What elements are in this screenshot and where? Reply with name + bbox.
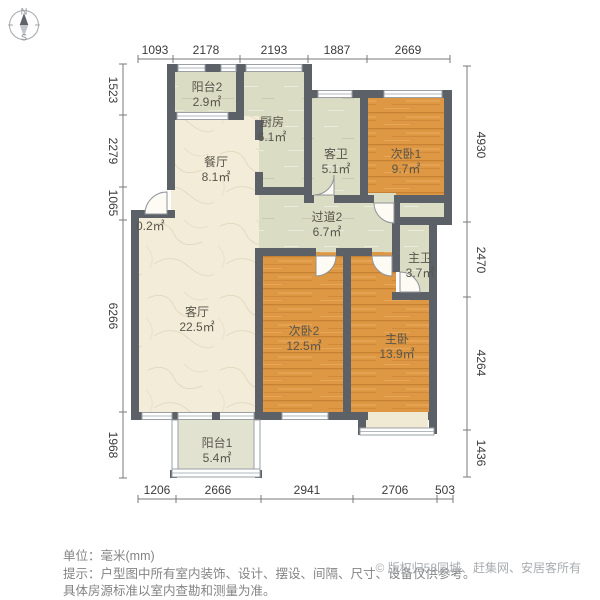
dim-right-2: 4264 — [474, 350, 488, 377]
dim-left-3: 6266 — [106, 303, 120, 330]
label-bedroom2: 次卧2 — [289, 324, 320, 338]
footer-tip-line2: 具体房源标准以室内查勘和测量为准。 — [63, 583, 276, 598]
master-bay-window-sill — [366, 412, 428, 429]
compass-south-label: S — [21, 33, 27, 43]
label-hallway2: 过道2 — [312, 210, 343, 224]
area-hallway2: 6.7㎡ — [313, 225, 342, 239]
living-balcony-slider — [178, 412, 254, 420]
dim-top-0: 1093 — [142, 43, 169, 57]
dim-bottom-1: 2666 — [205, 483, 232, 497]
area-bedroom2: 12.5㎡ — [286, 339, 321, 353]
footer: 单位：毫米(mm) 提示：户型图中所有室内装饰、设计、摆设、间隔、尺寸、设备仅供… — [63, 548, 581, 598]
area-dining: 8.1㎡ — [202, 170, 231, 184]
kitchen-top-window — [246, 65, 302, 72]
floorplan-drawing: N S — [0, 0, 600, 600]
room-master-bath-duct — [400, 203, 444, 217]
room-living — [135, 214, 175, 416]
dim-top-4: 2669 — [395, 43, 422, 57]
dim-left-1: 2279 — [106, 138, 120, 165]
dim-top-3: 1887 — [324, 43, 351, 57]
dimension-left: 1523 2279 1065 6266 1968 — [106, 64, 127, 478]
bedroom1-window — [384, 91, 442, 98]
area-balcony1: 5.4㎡ — [203, 451, 232, 465]
dim-right-1: 2470 — [474, 247, 488, 274]
area-entry-niche: 0.2㎡ — [136, 219, 165, 233]
dim-bottom-4: 503 — [435, 483, 455, 497]
area-bedroom1: 9.7㎡ — [392, 162, 421, 176]
dimension-bottom: 1206 2666 2941 2706 503 — [138, 483, 455, 503]
entry-door — [145, 192, 167, 214]
dim-bottom-0: 1206 — [144, 483, 171, 497]
dim-top-2: 2193 — [261, 43, 288, 57]
dim-left-0: 1523 — [106, 77, 120, 104]
label-master-bath: 主卫 — [408, 251, 432, 265]
floorplan-page: N S — [0, 0, 600, 600]
area-master-bedroom: 13.9㎡ — [379, 347, 414, 361]
dim-top-1: 2178 — [193, 43, 220, 57]
label-master-bedroom: 主卧 — [385, 332, 409, 346]
master-bay-window — [360, 428, 434, 435]
label-balcony2: 阳台2 — [192, 79, 223, 94]
living-window — [142, 413, 172, 420]
dimension-top: 1093 2178 2193 1887 2669 — [138, 43, 450, 63]
dim-bottom-3: 2706 — [382, 483, 409, 497]
dim-right-0: 4930 — [474, 132, 488, 159]
label-dining: 餐厅 — [204, 154, 228, 169]
dim-left-2: 1065 — [106, 190, 120, 217]
label-bedroom1: 次卧1 — [391, 147, 422, 161]
guest-bath-window — [318, 91, 352, 98]
area-living: 22.5㎡ — [179, 320, 214, 334]
dim-bottom-2: 2941 — [294, 483, 321, 497]
footer-unit-line: 单位：毫米(mm) — [63, 548, 155, 563]
area-balcony2: 2.9㎡ — [193, 95, 222, 109]
balcony2-dining-window — [177, 113, 228, 120]
label-guest-bath: 客卫 — [324, 146, 348, 161]
compass-icon: N S — [8, 7, 40, 43]
bedroom2-window — [282, 413, 328, 420]
area-master-bath: 3.7㎡ — [406, 266, 435, 280]
label-kitchen: 厨房 — [260, 114, 284, 129]
compass-north-label: N — [21, 7, 28, 17]
area-guest-bath: 5.1㎡ — [322, 162, 351, 176]
dimension-right: 4930 2470 4264 1436 — [463, 66, 488, 477]
footer-copyright: © 版权归58同城、赶集网、安居客所有 — [375, 560, 581, 575]
label-balcony1: 阳台1 — [202, 435, 233, 450]
area-kitchen: 6.1㎡ — [258, 130, 287, 144]
label-living: 客厅 — [185, 304, 209, 319]
dim-left-4: 1968 — [106, 432, 120, 459]
dim-right-3: 1436 — [474, 440, 488, 467]
